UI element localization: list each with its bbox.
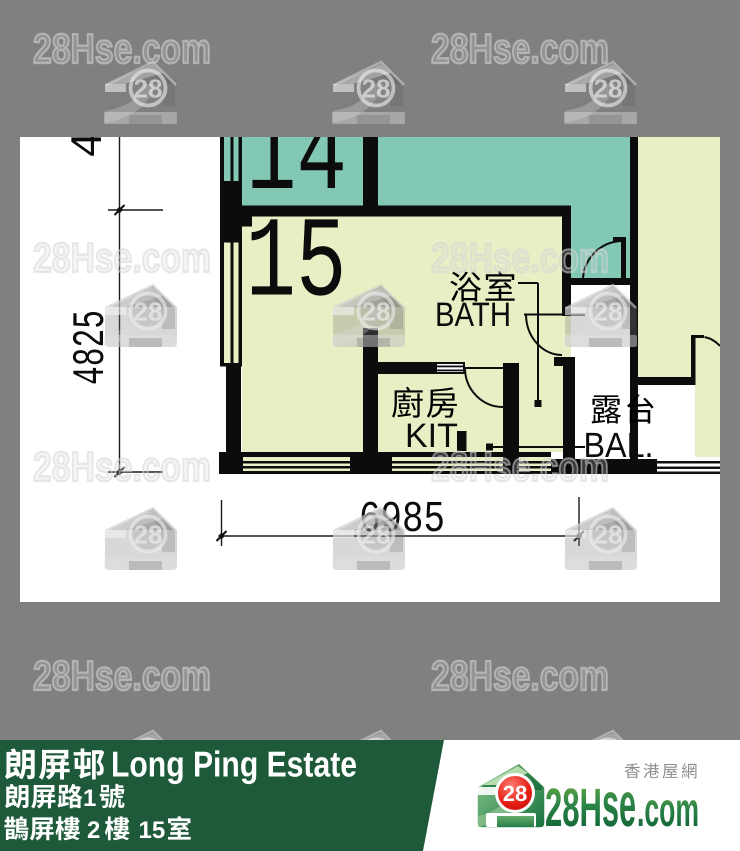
- svg-text:.com: .com: [637, 784, 699, 837]
- svg-text:28Hse.com: 28Hse.com: [33, 25, 211, 72]
- svg-text:28Hse.com: 28Hse.com: [33, 234, 211, 281]
- svg-text:28Hse.com: 28Hse.com: [431, 25, 609, 72]
- svg-text:2: 2: [87, 817, 100, 844]
- svg-text:1: 1: [83, 785, 96, 812]
- svg-text:15: 15: [139, 817, 166, 844]
- svg-text:se: se: [602, 770, 636, 840]
- svg-text:15: 15: [246, 201, 347, 330]
- svg-text:28Hse.com: 28Hse.com: [431, 234, 609, 281]
- svg-text:28Hse.com: 28Hse.com: [431, 443, 609, 490]
- svg-text:28: 28: [503, 781, 527, 806]
- svg-text:28Hse.com: 28Hse.com: [33, 652, 211, 699]
- svg-text:28Hse.com: 28Hse.com: [431, 652, 609, 699]
- svg-text:28Hse.com: 28Hse.com: [33, 443, 211, 490]
- svg-text:Long Ping Estate: Long Ping Estate: [111, 744, 357, 785]
- svg-text:BATH: BATH: [435, 296, 511, 334]
- svg-text:28H: 28H: [545, 778, 602, 838]
